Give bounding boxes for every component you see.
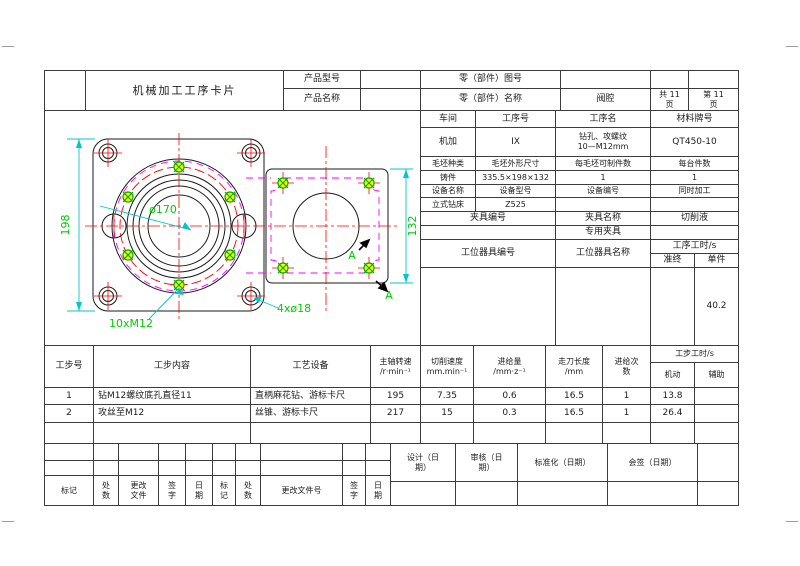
- part-no-label: 零（部件）图号: [420, 70, 561, 89]
- step-row-passes: 1: [602, 387, 651, 405]
- equipment-no-value: [555, 197, 651, 212]
- parts-per-blank-value: 1: [555, 170, 651, 185]
- equipment-model-label: 设备型号: [475, 184, 556, 198]
- blank-size-label: 毛坯外形尺寸: [475, 156, 556, 171]
- top-left-cell: [44, 70, 86, 111]
- revision-change-file-label: 更改 文件: [118, 475, 159, 506]
- fixture-name-value: 专用夹具: [555, 225, 651, 240]
- station-tool-no-label: 工位器具编号: [420, 239, 556, 268]
- hidden-extension-lines: [246, 178, 271, 273]
- approval-standardization-signature: [517, 481, 608, 506]
- grid-cell: [44, 422, 94, 444]
- step-row-cut-speed: 7.35: [420, 387, 474, 405]
- approval-design-label: 设计（日 期）: [390, 443, 456, 482]
- crop-mark: [786, 46, 798, 47]
- step-row-cut-speed: 15: [420, 404, 474, 423]
- blank-type-label: 毛坯种类: [420, 156, 476, 171]
- grid-cell: [650, 70, 689, 89]
- section-label-a2: A: [385, 289, 393, 302]
- process-time-label: 工序工时/s: [650, 239, 739, 254]
- approval-audit-signature: [455, 481, 518, 506]
- pages-total: 共 11 页: [650, 88, 689, 111]
- revision-sign2-label: 签 字: [342, 475, 366, 506]
- workshop-label: 车间: [420, 110, 476, 128]
- step-row-aux-time: [694, 404, 739, 423]
- step-row-spindle: 195: [370, 387, 421, 405]
- station-tool-name-label: 工位器具名称: [555, 239, 651, 268]
- product-model-value: [360, 70, 421, 89]
- steps-header-length: 走刀长度 /mm: [545, 345, 603, 388]
- parts-per-machine-label: 每台件数: [650, 156, 739, 171]
- product-model-label: 产品型号: [283, 70, 361, 89]
- revision-mark2-label: 标 记: [212, 475, 236, 506]
- body-hole-centerlines: [114, 172, 380, 279]
- equipment-name-value: 立式钻床: [420, 197, 476, 212]
- step-row-feed: 0.3: [473, 404, 546, 423]
- step-row-content: 钻M12螺纹底孔直径11: [93, 387, 251, 405]
- steps-header-aux-time: 辅助: [694, 362, 739, 388]
- process-name-value: 钻孔、攻螺纹 10—M12mm: [555, 127, 651, 157]
- coolant-label: 切削液: [650, 211, 739, 226]
- material-value: QT450-10: [650, 127, 739, 157]
- step-row-content: 攻丝至M12: [93, 404, 251, 423]
- approval-standardization-label: 标准化（日期）: [517, 443, 608, 482]
- step-row-equipment: 直柄麻花钻、游标卡尺: [250, 387, 371, 405]
- steps-header-no: 工步号: [44, 345, 94, 388]
- steps-header-equipment: 工艺设备: [250, 345, 371, 388]
- steps-header-spindle: 主轴转速 /r·min⁻¹: [370, 345, 421, 388]
- dimension-lines: [67, 139, 413, 319]
- grid-cell: [650, 422, 695, 444]
- approval-countersign-signature: [607, 481, 698, 506]
- crop-mark: [786, 521, 798, 522]
- simultaneous-label: 同时加工: [650, 184, 739, 198]
- material-label: 材料牌号: [650, 110, 739, 128]
- crop-mark: [2, 521, 14, 522]
- part-no-value: [560, 70, 651, 89]
- blank-size-value: 335.5×198×132: [475, 170, 556, 185]
- card-title: 机械加工工序卡片: [85, 70, 284, 111]
- grid-cell: [694, 422, 739, 444]
- step-row-aux-time: [694, 387, 739, 405]
- grid-cell: [473, 422, 546, 444]
- process-name-label: 工序名: [555, 110, 651, 128]
- step-row-length: 16.5: [545, 404, 603, 423]
- station-tool-no-value: [420, 267, 556, 346]
- step-row-length: 16.5: [545, 387, 603, 405]
- grid-cell: [93, 422, 251, 444]
- step-row-passes: 1: [602, 404, 651, 423]
- revision-date2-label: 日 期: [365, 475, 391, 506]
- step-row-no: 1: [44, 387, 94, 405]
- valve-body-drawing: 198 132 ø170 10xM12 4xø18 A A: [45, 111, 420, 345]
- grid-cell: [545, 422, 603, 444]
- grid-cell: [370, 422, 421, 444]
- equipment-name-label: 设备名称: [420, 184, 476, 198]
- grid-cell: [250, 422, 371, 444]
- simultaneous-value: [650, 197, 739, 212]
- approval-countersign-label: 会签（日期）: [607, 443, 698, 482]
- approval-audit-label: 审核（日 期）: [455, 443, 518, 482]
- step-row-machine-time: 13.8: [650, 387, 695, 405]
- steps-header-step-time: 工步工时/s: [650, 345, 739, 363]
- dim-198: 198: [59, 215, 72, 236]
- centerlines: [85, 133, 397, 319]
- revision-count-label: 处 数: [93, 475, 119, 506]
- label-through-holes: 4xø18: [277, 302, 311, 315]
- step-row-no: 2: [44, 404, 94, 423]
- revision-change-file-no-label: 更改文件号: [260, 475, 343, 506]
- steps-header-feed: 进给量 /mm·z⁻¹: [473, 345, 546, 388]
- grid-cell: [697, 481, 739, 506]
- section-label-a1: A: [348, 249, 356, 262]
- label-tapped-holes: 10xM12: [109, 317, 153, 330]
- workshop-value: 机加: [420, 127, 476, 157]
- step-row-machine-time: 26.4: [650, 404, 695, 423]
- process-no-label: 工序号: [475, 110, 556, 128]
- revision-mark-label: 标记: [44, 475, 94, 506]
- revision-sign-label: 签 字: [158, 475, 186, 506]
- fixture-name-label: 夹具名称: [555, 211, 651, 226]
- divider: [44, 460, 391, 461]
- part-name-value: 阀腔: [560, 88, 651, 111]
- crop-mark: [2, 46, 14, 47]
- fixture-no-value: [420, 225, 556, 240]
- product-name-label: 产品名称: [283, 88, 361, 111]
- fixture-no-label: 夹具编号: [420, 211, 556, 226]
- revision-count2-label: 处 数: [235, 475, 261, 506]
- product-name-value: [360, 88, 421, 111]
- equipment-no-label: 设备编号: [555, 184, 651, 198]
- parts-per-blank-label: 每毛坯可制件数: [555, 156, 651, 171]
- approval-design-signature: [390, 481, 456, 506]
- blank-type-value: 铸件: [420, 170, 476, 185]
- process-no-value: IX: [475, 127, 556, 157]
- setup-time-label: 准终: [650, 253, 695, 268]
- setup-time-value: [650, 267, 695, 346]
- coolant-value: [650, 225, 739, 240]
- part-name-label: 零（部件）名称: [420, 88, 561, 111]
- steps-header-machine-time: 机动: [650, 362, 695, 388]
- station-tool-name-value: [555, 267, 651, 346]
- process-card-page: 机械加工工序卡片 产品型号 零（部件）图号 产品名称 零（部件）名称 阀腔 共 …: [0, 0, 800, 566]
- grid-cell: [602, 422, 651, 444]
- steps-header-cut-speed: 切削速度 mm.min⁻¹: [420, 345, 474, 388]
- unit-time-label: 单件: [694, 253, 739, 268]
- dim-bolt-circle: ø170: [149, 203, 177, 216]
- grid-cell: [697, 443, 739, 482]
- parts-per-machine-value: 1: [650, 170, 739, 185]
- step-row-feed: 0.6: [473, 387, 546, 405]
- steps-header-content: 工步内容: [93, 345, 251, 388]
- step-row-spindle: 217: [370, 404, 421, 423]
- dim-132: 132: [406, 216, 419, 237]
- unit-time-value: 40.2: [694, 267, 739, 346]
- grid-cell: [420, 422, 474, 444]
- step-row-equipment: 丝锥、游标卡尺: [250, 404, 371, 423]
- page-number: 第 11 页: [688, 88, 739, 111]
- technical-drawing-cell: 198 132 ø170 10xM12 4xø18 A A: [44, 110, 421, 346]
- grid-cell: [688, 70, 739, 89]
- equipment-model-value: Z525: [475, 197, 556, 212]
- revision-date-label: 日 期: [185, 475, 213, 506]
- steps-header-passes: 进给次 数: [602, 345, 651, 388]
